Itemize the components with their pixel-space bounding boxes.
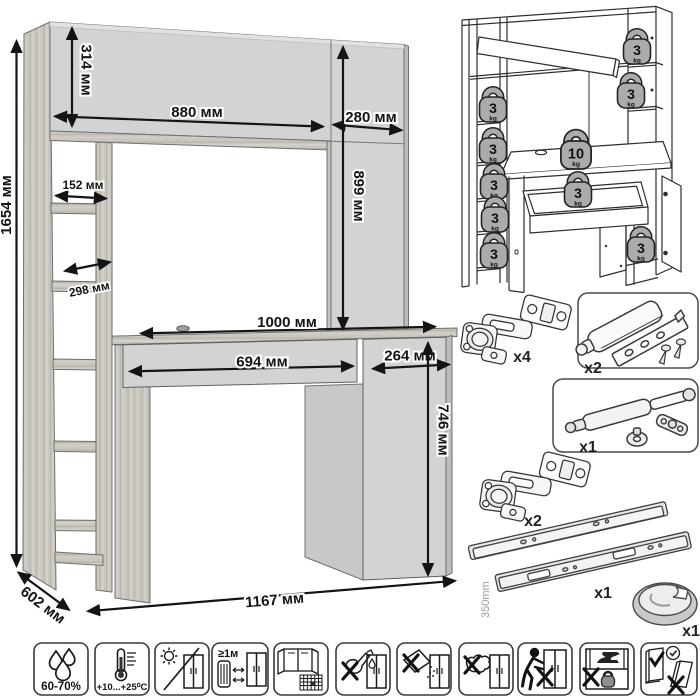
- svg-text:880 мм: 880 мм: [171, 104, 222, 121]
- svg-text:kg: kg: [572, 161, 580, 168]
- svg-text:1654 мм: 1654 мм: [0, 175, 15, 235]
- svg-text:kg: kg: [490, 262, 498, 269]
- svg-text:kg: kg: [633, 58, 641, 65]
- svg-text:kg: kg: [491, 226, 499, 233]
- svg-text:899 мм: 899 мм: [350, 170, 367, 221]
- svg-text:+10...+25⁰C: +10...+25⁰C: [97, 682, 148, 693]
- svg-text:x1: x1: [579, 439, 597, 456]
- svg-text:x4: x4: [513, 349, 531, 366]
- svg-text:kg: kg: [489, 116, 497, 123]
- svg-text:kg: kg: [489, 157, 497, 164]
- svg-text:350mm: 350mm: [480, 581, 492, 618]
- svg-text:60-70%: 60-70%: [41, 681, 81, 693]
- svg-text:3: 3: [627, 86, 635, 102]
- svg-text:x2: x2: [524, 513, 542, 530]
- svg-text:x2: x2: [584, 360, 602, 377]
- svg-text:3: 3: [574, 185, 582, 201]
- svg-text:3: 3: [489, 100, 497, 116]
- svg-text:3: 3: [490, 246, 498, 262]
- svg-text:3: 3: [490, 177, 498, 193]
- svg-text:280 мм: 280 мм: [345, 109, 396, 126]
- svg-text:x1: x1: [682, 623, 700, 640]
- svg-text:152 мм: 152 мм: [62, 178, 103, 192]
- svg-text:694 мм: 694 мм: [236, 354, 287, 371]
- svg-text:3: 3: [491, 210, 499, 226]
- svg-text:3: 3: [489, 141, 497, 157]
- svg-text:10: 10: [568, 146, 584, 162]
- svg-text:≥1м: ≥1м: [218, 648, 238, 660]
- svg-text:314 мм: 314 мм: [78, 44, 95, 95]
- svg-text:kg: kg: [637, 256, 645, 263]
- svg-text:3: 3: [637, 240, 645, 256]
- svg-text:kg: kg: [574, 201, 582, 208]
- svg-text:3: 3: [633, 42, 641, 58]
- svg-text:kg: kg: [627, 102, 635, 109]
- svg-text:1000 мм: 1000 мм: [257, 314, 317, 331]
- svg-text:x1: x1: [594, 585, 612, 602]
- svg-text:746 мм: 746 мм: [435, 404, 452, 455]
